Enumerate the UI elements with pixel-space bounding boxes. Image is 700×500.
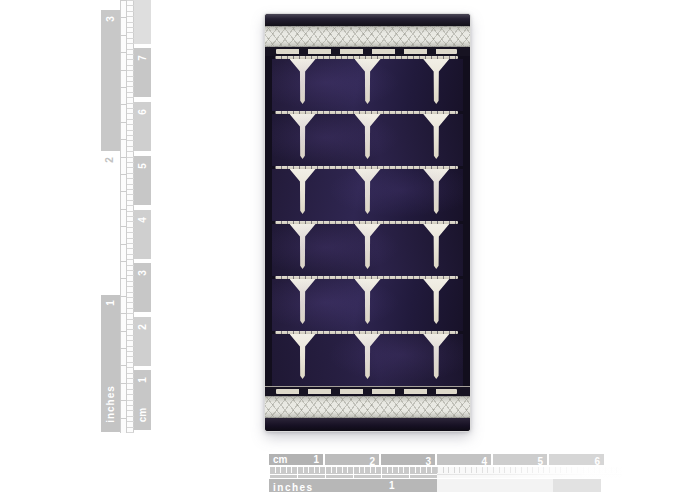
panel-top-edge <box>265 14 470 26</box>
vertical-cm-segment-top-fade <box>134 0 151 44</box>
vertical-inch-mark-2: 2 <box>104 157 115 163</box>
cell-surface <box>272 59 463 111</box>
electrode <box>423 169 449 214</box>
horizontal-cm-mark-6: 6 <box>594 456 600 467</box>
electrode <box>290 334 316 379</box>
horizontal-inch-segment-3-faded <box>553 479 601 492</box>
horizontal-cm-segment-3: 3 <box>381 454 436 465</box>
electrode <box>423 224 449 269</box>
electrode <box>355 169 381 214</box>
panel-bottom-edge <box>265 418 470 431</box>
horizontal-cm-segment-5: 5 <box>493 454 548 465</box>
horizontal-tick-strip-solid <box>269 467 437 478</box>
electrode <box>290 224 316 269</box>
electrode <box>423 114 449 159</box>
vertical-cm-mark-7: 7 <box>137 55 148 61</box>
solar-cell-area <box>265 56 470 386</box>
horizontal-cm-segment-1: cm 1 <box>269 454 324 465</box>
electrode <box>355 334 381 379</box>
cell-surface <box>272 169 463 221</box>
cell-surface <box>272 279 463 331</box>
vertical-inch-mark-1: 1 <box>105 300 116 306</box>
horizontal-cm-label: cm <box>273 454 287 465</box>
horizontal-inches-label: inches <box>273 482 314 493</box>
vertical-cm-label: cm <box>137 408 148 422</box>
electrode <box>290 279 316 324</box>
solar-cell-row <box>272 111 463 166</box>
horizontal-inch-segment-2-faded <box>437 479 553 492</box>
vertical-cm-mark-4: 4 <box>137 217 148 223</box>
electrode <box>423 334 449 379</box>
horizontal-cm-segment-6: 6 <box>549 454 604 465</box>
horizontal-cm-mark-5: 5 <box>537 456 543 467</box>
horizontal-cm-segment-2: 2 <box>325 454 380 465</box>
vertical-cm-mark-3: 3 <box>137 270 148 276</box>
electrode <box>290 169 316 214</box>
contact-dash-strip <box>276 49 457 54</box>
horizontal-cm-mark-1: 1 <box>313 454 319 465</box>
solar-cell-row <box>272 221 463 276</box>
horizontal-cm-mark-3: 3 <box>425 456 431 467</box>
horizontal-cm-mark-4: 4 <box>481 456 487 467</box>
vertical-tick-strip <box>120 0 134 433</box>
horizontal-inch-segment-1: inches 1 <box>269 479 437 492</box>
electrode <box>355 279 381 324</box>
product-photo-stage: 3 2 1 inches 7 6 5 4 3 2 1 cm <box>0 0 700 500</box>
vertical-inch-segment-3 <box>101 10 120 151</box>
panel-top-contact-dashes <box>265 47 470 56</box>
solar-cell-row <box>272 166 463 221</box>
vertical-cm-mark-1: 1 <box>137 377 148 383</box>
horizontal-inch-mark-1: 1 <box>389 479 395 492</box>
horizontal-tick-strip-faded <box>437 467 622 478</box>
vertical-cm-mark-6: 6 <box>137 109 148 115</box>
panel-top-foil-band <box>265 26 470 47</box>
horizontal-cm-mark-2: 2 <box>369 456 375 467</box>
electrode <box>290 59 316 104</box>
electrode <box>423 279 449 324</box>
solar-cell-row <box>272 56 463 111</box>
cell-surface <box>272 224 463 276</box>
solar-cell-row <box>272 276 463 331</box>
electrode <box>355 59 381 104</box>
panel-bottom-foil-band <box>265 396 470 418</box>
solar-panel <box>265 14 470 431</box>
electrode <box>290 114 316 159</box>
vertical-cm-mark-5: 5 <box>137 163 148 169</box>
contact-dash-strip <box>276 389 457 394</box>
electrode <box>355 114 381 159</box>
cell-surface <box>272 114 463 166</box>
cell-surface <box>272 334 463 386</box>
solar-cell-row <box>272 331 463 386</box>
horizontal-cm-segment-4: 4 <box>437 454 492 465</box>
panel-bottom-contact-dashes <box>265 386 470 396</box>
vertical-inch-mark-3: 3 <box>105 16 116 22</box>
electrode <box>355 224 381 269</box>
vertical-inches-label: inches <box>105 385 116 423</box>
electrode <box>423 59 449 104</box>
vertical-cm-mark-2: 2 <box>137 324 148 330</box>
